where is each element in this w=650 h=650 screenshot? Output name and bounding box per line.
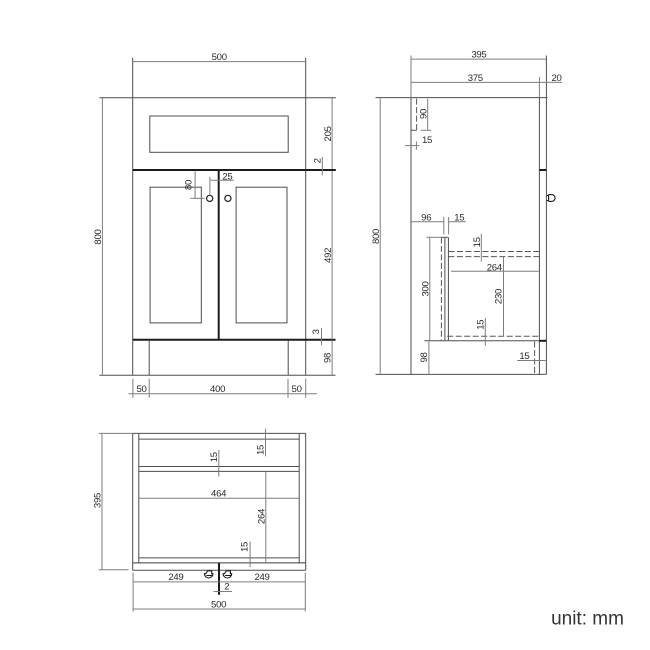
svg-text:15: 15 [422,135,432,146]
svg-text:249: 249 [168,572,183,583]
svg-text:205: 205 [323,126,334,141]
svg-text:25: 25 [222,171,232,182]
svg-text:15: 15 [454,212,464,223]
svg-text:80: 80 [183,180,194,190]
svg-text:98: 98 [419,352,430,362]
svg-text:300: 300 [420,281,431,296]
svg-text:15: 15 [239,542,250,552]
svg-text:15: 15 [256,445,267,455]
svg-text:2: 2 [313,158,324,163]
svg-text:15: 15 [519,351,529,362]
svg-text:2: 2 [224,582,229,593]
svg-text:500: 500 [212,52,227,63]
svg-text:500: 500 [211,599,226,610]
svg-text:464: 464 [211,489,227,500]
svg-text:800: 800 [371,229,382,244]
svg-text:98: 98 [323,353,334,363]
svg-text:375: 375 [468,73,483,84]
svg-text:395: 395 [471,50,486,61]
svg-text:20: 20 [551,73,561,84]
svg-text:395: 395 [93,493,104,508]
svg-text:50: 50 [292,384,302,395]
svg-text:15: 15 [472,237,483,247]
svg-text:15: 15 [475,320,486,330]
svg-text:264: 264 [256,508,267,524]
svg-text:50: 50 [136,384,146,395]
svg-text:15: 15 [209,452,220,462]
svg-text:96: 96 [421,212,431,223]
svg-text:264: 264 [487,262,503,273]
svg-text:249: 249 [254,572,269,583]
svg-text:400: 400 [210,384,225,395]
svg-text:800: 800 [93,229,104,244]
svg-text:90: 90 [418,109,429,119]
svg-text:3: 3 [311,329,322,334]
svg-text:unit: mm: unit: mm [551,609,624,630]
svg-text:492: 492 [323,248,334,263]
svg-text:230: 230 [493,289,504,304]
